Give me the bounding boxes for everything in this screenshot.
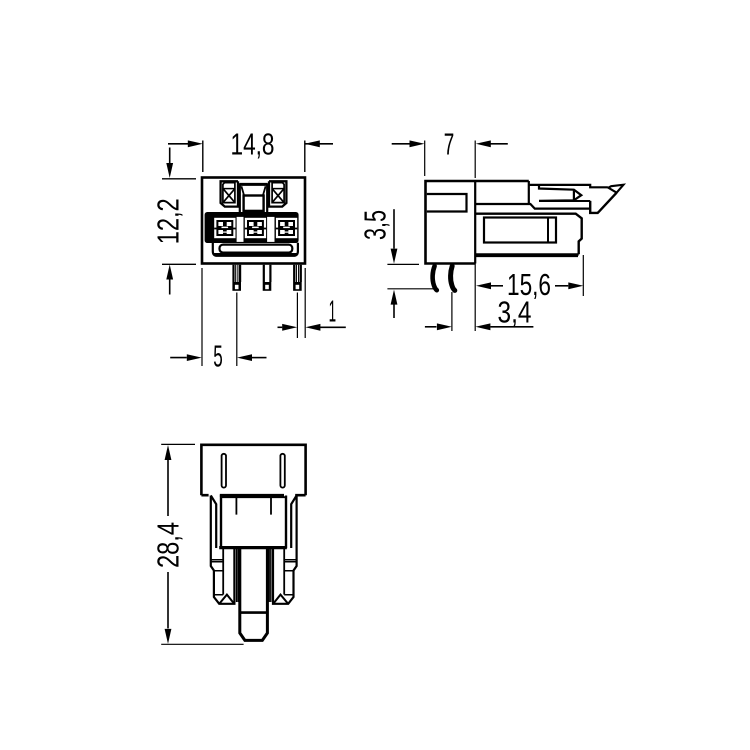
svg-text:1: 1	[329, 294, 337, 329]
svg-text:5: 5	[213, 338, 223, 373]
svg-text:3,4: 3,4	[498, 295, 532, 330]
svg-text:28,4: 28,4	[150, 522, 185, 568]
svg-text:3,5: 3,5	[358, 210, 393, 240]
svg-text:14,8: 14,8	[231, 127, 275, 162]
svg-text:12,2: 12,2	[150, 198, 185, 244]
svg-text:7: 7	[444, 127, 455, 162]
